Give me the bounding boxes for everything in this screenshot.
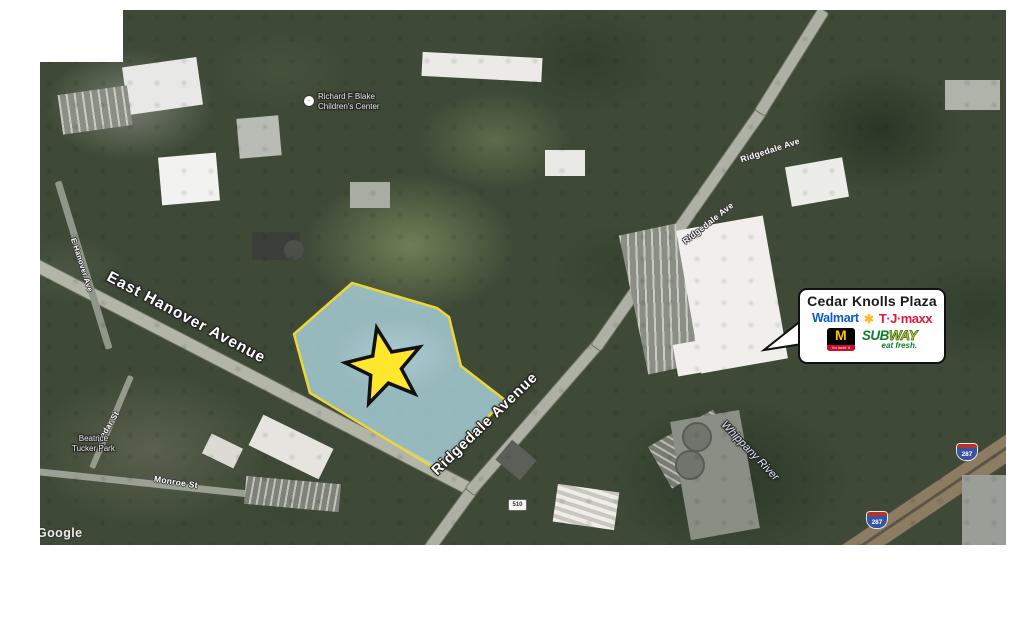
tjmaxx-logo: T·J·maxx — [879, 312, 932, 325]
poi-label-line2: Children's Center — [318, 102, 380, 112]
poi-icon: ▪ — [304, 96, 314, 106]
route-510-shield-icon: 510 — [508, 499, 527, 511]
poi-label-childrens-center: Richard F Blake Children's Center — [318, 92, 380, 112]
poi-label-line1: Richard F Blake — [318, 92, 380, 102]
google-watermark: Google — [40, 526, 82, 540]
callout-cedar-knolls-plaza: Cedar Knolls Plaza Walmart ✱ T·J·maxx M … — [798, 288, 946, 364]
subway-logo: SUBWAY eat fresh. — [862, 329, 917, 350]
callout-pointer — [764, 320, 802, 350]
walmart-logo: Walmart — [812, 312, 859, 325]
mcdonalds-logo: M i'm lovin' it — [827, 328, 855, 351]
satellite-map: East Hanover Avenue Ridgedale Avenue Rid… — [40, 10, 1006, 545]
park-label-line2: Tucker Park — [72, 444, 115, 454]
subway-tagline: eat fresh. — [882, 342, 918, 350]
interstate-287-shield-icon: 287 — [957, 444, 977, 460]
mcdonalds-tagline: i'm lovin' it — [827, 345, 855, 351]
poi-glyph: ▪ — [308, 99, 310, 104]
park-label-beatrice-tucker-park: Beatrice Tucker Park — [72, 434, 115, 453]
shield-number: 510 — [512, 502, 522, 508]
callout-title: Cedar Knolls Plaza — [807, 293, 937, 309]
page: East Hanover Avenue Ridgedale Avenue Rid… — [0, 0, 1024, 633]
shield-number: 287 — [872, 520, 883, 527]
interstate-287-shield-icon: 287 — [867, 512, 887, 528]
walmart-spark-icon: ✱ — [864, 313, 874, 325]
park-label-line1: Beatrice — [72, 434, 115, 444]
shield-number: 287 — [962, 452, 973, 459]
